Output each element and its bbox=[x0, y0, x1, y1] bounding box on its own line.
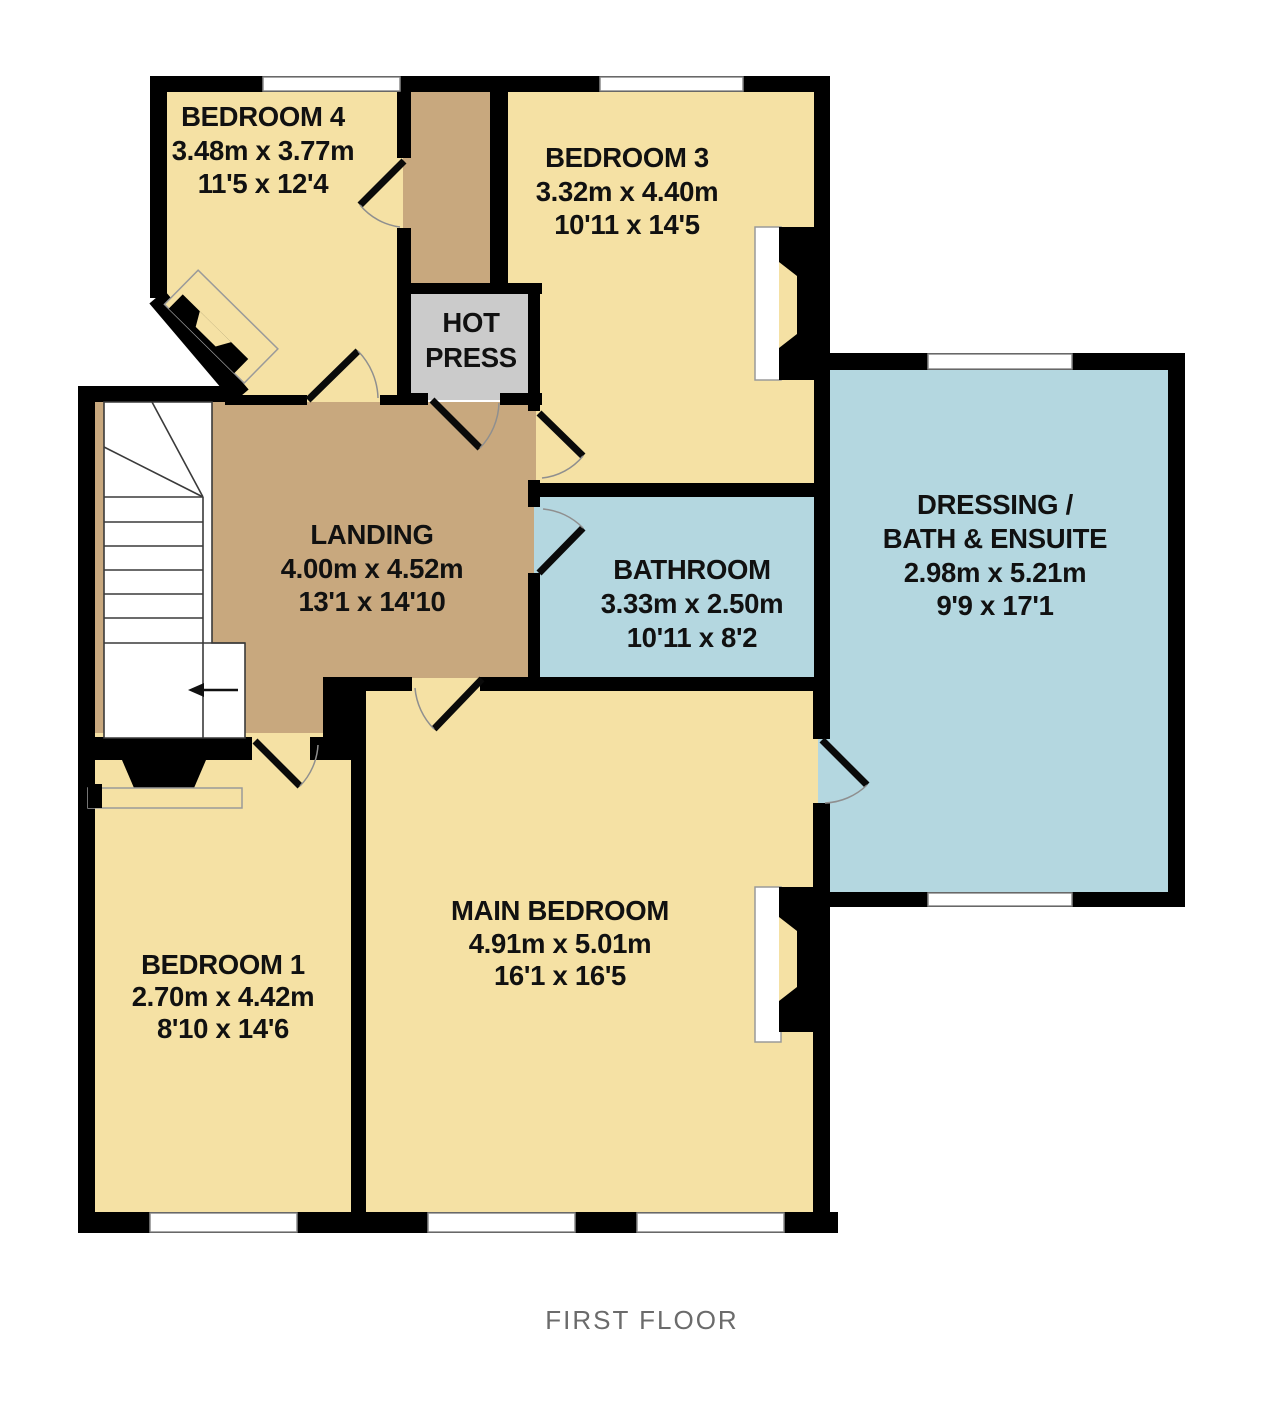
main-bedroom-dims-metric: 4.91m x 5.01m bbox=[469, 928, 652, 959]
dressing-dims-imperial: 9'9 x 17'1 bbox=[936, 590, 1053, 621]
wall-bathroom-top bbox=[540, 483, 814, 497]
main-bedroom-window-right bbox=[637, 1213, 784, 1232]
wall-bedroom4-corridor-upper bbox=[397, 88, 411, 158]
wall-dressing-right bbox=[1168, 353, 1185, 907]
bedroom3-window bbox=[600, 77, 743, 91]
main-bedroom-fireplace-notch bbox=[779, 917, 797, 1001]
main-bedroom-alcove bbox=[755, 887, 781, 1042]
wall-landing-bedroom3 bbox=[528, 283, 540, 411]
wall-landing-main-bedroom-right bbox=[480, 677, 814, 691]
bathroom-name: BATHROOM bbox=[613, 554, 770, 585]
landing-dims-imperial: 13'1 x 14'10 bbox=[298, 586, 445, 617]
room-landing-jut-floor bbox=[243, 660, 328, 740]
wall-exterior-right-upper bbox=[814, 76, 830, 677]
bedroom3-fireplace-notch bbox=[779, 262, 797, 348]
wall-hot-press-bottom-left bbox=[397, 393, 428, 405]
bedroom1-hearth bbox=[88, 788, 242, 808]
dressing-name-line1: DRESSING / bbox=[917, 489, 1074, 520]
main-bedroom-dims-imperial: 16'1 x 16'5 bbox=[494, 960, 626, 991]
hot-press-name-line2: PRESS bbox=[425, 342, 517, 373]
bedroom1-chimney bbox=[122, 760, 206, 788]
dressing-dims-metric: 2.98m x 5.21m bbox=[904, 557, 1087, 588]
bedroom3-dims-imperial: 10'11 x 14'5 bbox=[554, 209, 700, 240]
room-dressing-floor bbox=[818, 362, 1174, 898]
wall-landing-corner-block bbox=[323, 677, 366, 760]
bedroom3-name: BEDROOM 3 bbox=[545, 142, 709, 173]
main-bedroom-window-left bbox=[428, 1213, 575, 1232]
bedroom4-window bbox=[263, 77, 400, 91]
floor-plan-drawing: BEDROOM 4 3.48m x 3.77m 11'5 x 12'4 BEDR… bbox=[0, 0, 1280, 1417]
wall-hot-press-top bbox=[397, 283, 542, 294]
bedroom1-dims-metric: 2.70m x 4.42m bbox=[132, 981, 315, 1012]
bedroom1-window bbox=[150, 1213, 297, 1232]
wall-exterior-right-mid bbox=[813, 677, 830, 739]
wall-landing-bathroom-upper bbox=[528, 480, 540, 507]
room-corridor-floor bbox=[403, 84, 498, 294]
floor-title: FIRST FLOOR bbox=[545, 1305, 738, 1335]
bedroom1-wall-pier bbox=[88, 784, 102, 808]
bedroom1-dims-imperial: 8'10 x 14'6 bbox=[157, 1013, 289, 1044]
wall-bedroom4-bottom-left bbox=[225, 395, 307, 405]
landing-name: LANDING bbox=[310, 519, 433, 550]
wall-bedroom4-bottom-right bbox=[380, 395, 400, 405]
bedroom3-alcove bbox=[755, 227, 781, 380]
bathroom-dims-imperial: 10'11 x 8'2 bbox=[627, 622, 758, 653]
wall-exterior-right-lower bbox=[813, 803, 830, 1214]
wall-exterior-left bbox=[78, 386, 95, 1233]
wall-corridor-bedroom3 bbox=[490, 88, 508, 294]
dressing-name-line2: BATH & ENSUITE bbox=[883, 523, 1107, 554]
wall-bedroom1-top-left bbox=[90, 737, 252, 760]
landing-dims-metric: 4.00m x 4.52m bbox=[281, 553, 464, 584]
dressing-window-top bbox=[928, 354, 1072, 369]
bedroom4-dims-metric: 3.48m x 3.77m bbox=[172, 135, 355, 166]
wall-bedroom4-left bbox=[150, 76, 167, 298]
wall-bedroom4-corridor-lower bbox=[397, 228, 411, 405]
wall-landing-bathroom-lower bbox=[528, 573, 540, 691]
bedroom4-name: BEDROOM 4 bbox=[181, 101, 346, 132]
bedroom4-dims-imperial: 11'5 x 12'4 bbox=[198, 168, 330, 199]
dressing-window-bottom bbox=[928, 893, 1072, 906]
bedroom1-name: BEDROOM 1 bbox=[141, 949, 305, 980]
hot-press-name-line1: HOT bbox=[442, 307, 500, 338]
bathroom-dims-metric: 3.33m x 2.50m bbox=[601, 588, 784, 619]
wall-bedroom1-main-bedroom bbox=[351, 760, 366, 1212]
bedroom3-dims-metric: 3.32m x 4.40m bbox=[536, 176, 719, 207]
main-bedroom-name: MAIN BEDROOM bbox=[451, 895, 669, 926]
floor-plan-page: BEDROOM 4 3.48m x 3.77m 11'5 x 12'4 BEDR… bbox=[0, 0, 1280, 1417]
wall-left-wing-top bbox=[78, 386, 232, 402]
